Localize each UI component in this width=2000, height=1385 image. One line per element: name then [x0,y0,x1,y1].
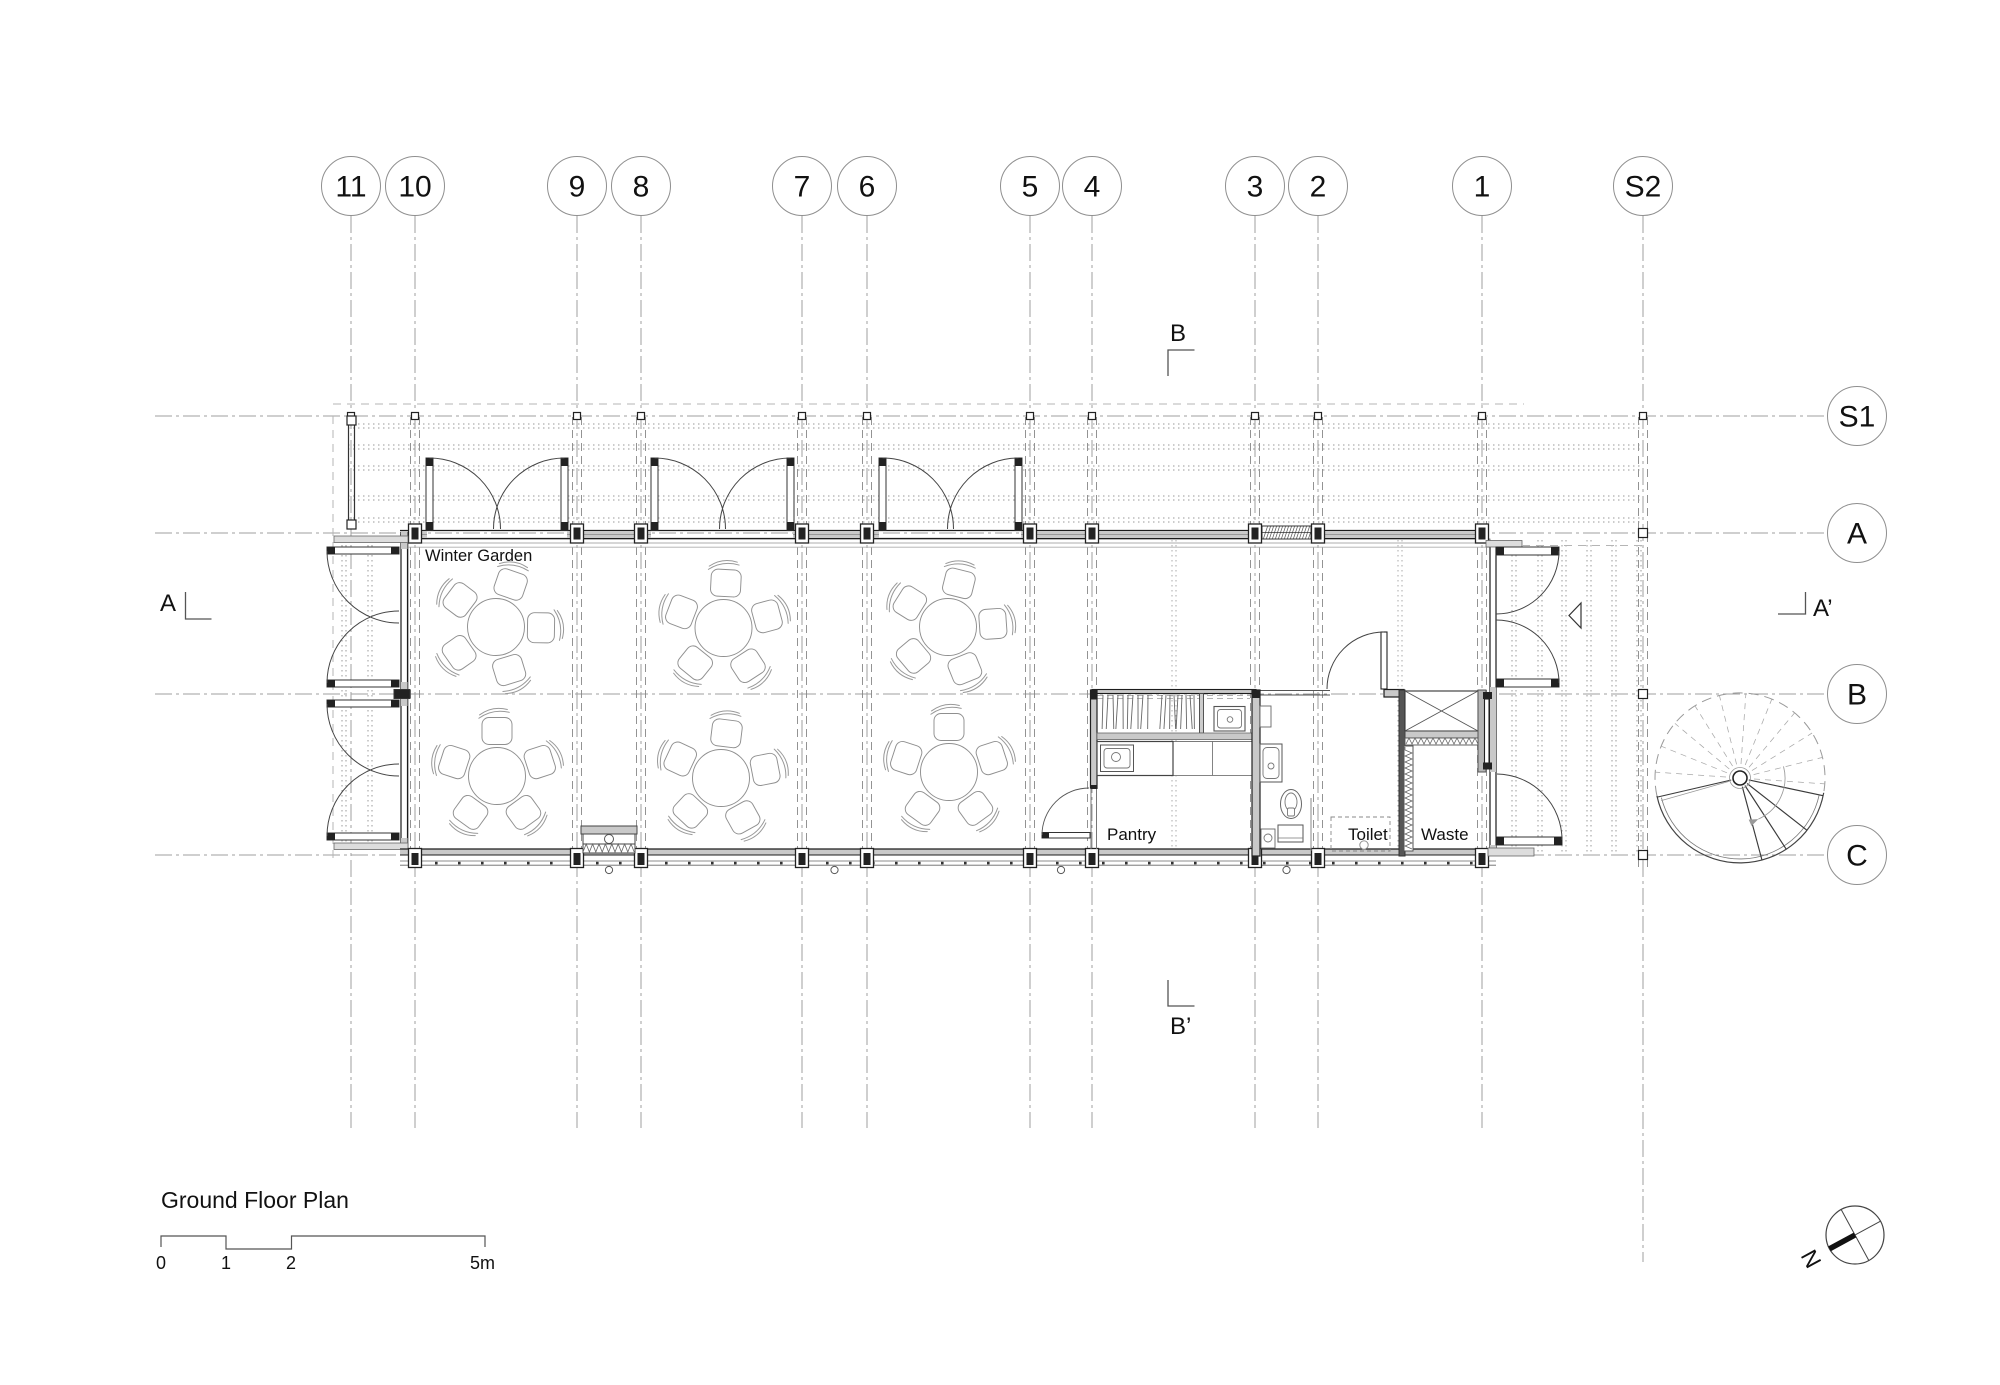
svg-text:Toilet: Toilet [1348,825,1388,844]
svg-text:A: A [1847,518,1867,551]
svg-text:11: 11 [335,171,366,204]
svg-text:2: 2 [286,1253,296,1273]
svg-text:10: 10 [398,171,431,204]
svg-text:5m: 5m [470,1253,495,1273]
svg-text:B: B [1847,679,1867,712]
svg-text:5: 5 [1022,171,1039,204]
svg-text:B’: B’ [1170,1013,1191,1040]
svg-text:1: 1 [1474,171,1491,204]
svg-text:9: 9 [569,171,586,204]
svg-text:B: B [1170,320,1186,347]
svg-text:6: 6 [859,171,876,204]
svg-text:2: 2 [1310,171,1327,204]
svg-text:Waste: Waste [1421,825,1469,844]
svg-text:Pantry: Pantry [1107,825,1157,844]
svg-text:7: 7 [794,171,811,204]
svg-text:Ground Floor Plan: Ground Floor Plan [161,1187,349,1213]
svg-text:8: 8 [633,171,650,204]
svg-text:3: 3 [1247,171,1264,204]
svg-text:C: C [1846,840,1868,873]
svg-text:4: 4 [1084,171,1101,204]
svg-text:S1: S1 [1839,401,1876,434]
svg-text:S2: S2 [1625,171,1662,204]
svg-text:A’: A’ [1813,595,1833,622]
svg-text:A: A [160,590,176,617]
svg-text:1: 1 [221,1253,231,1273]
svg-text:0: 0 [156,1253,166,1273]
